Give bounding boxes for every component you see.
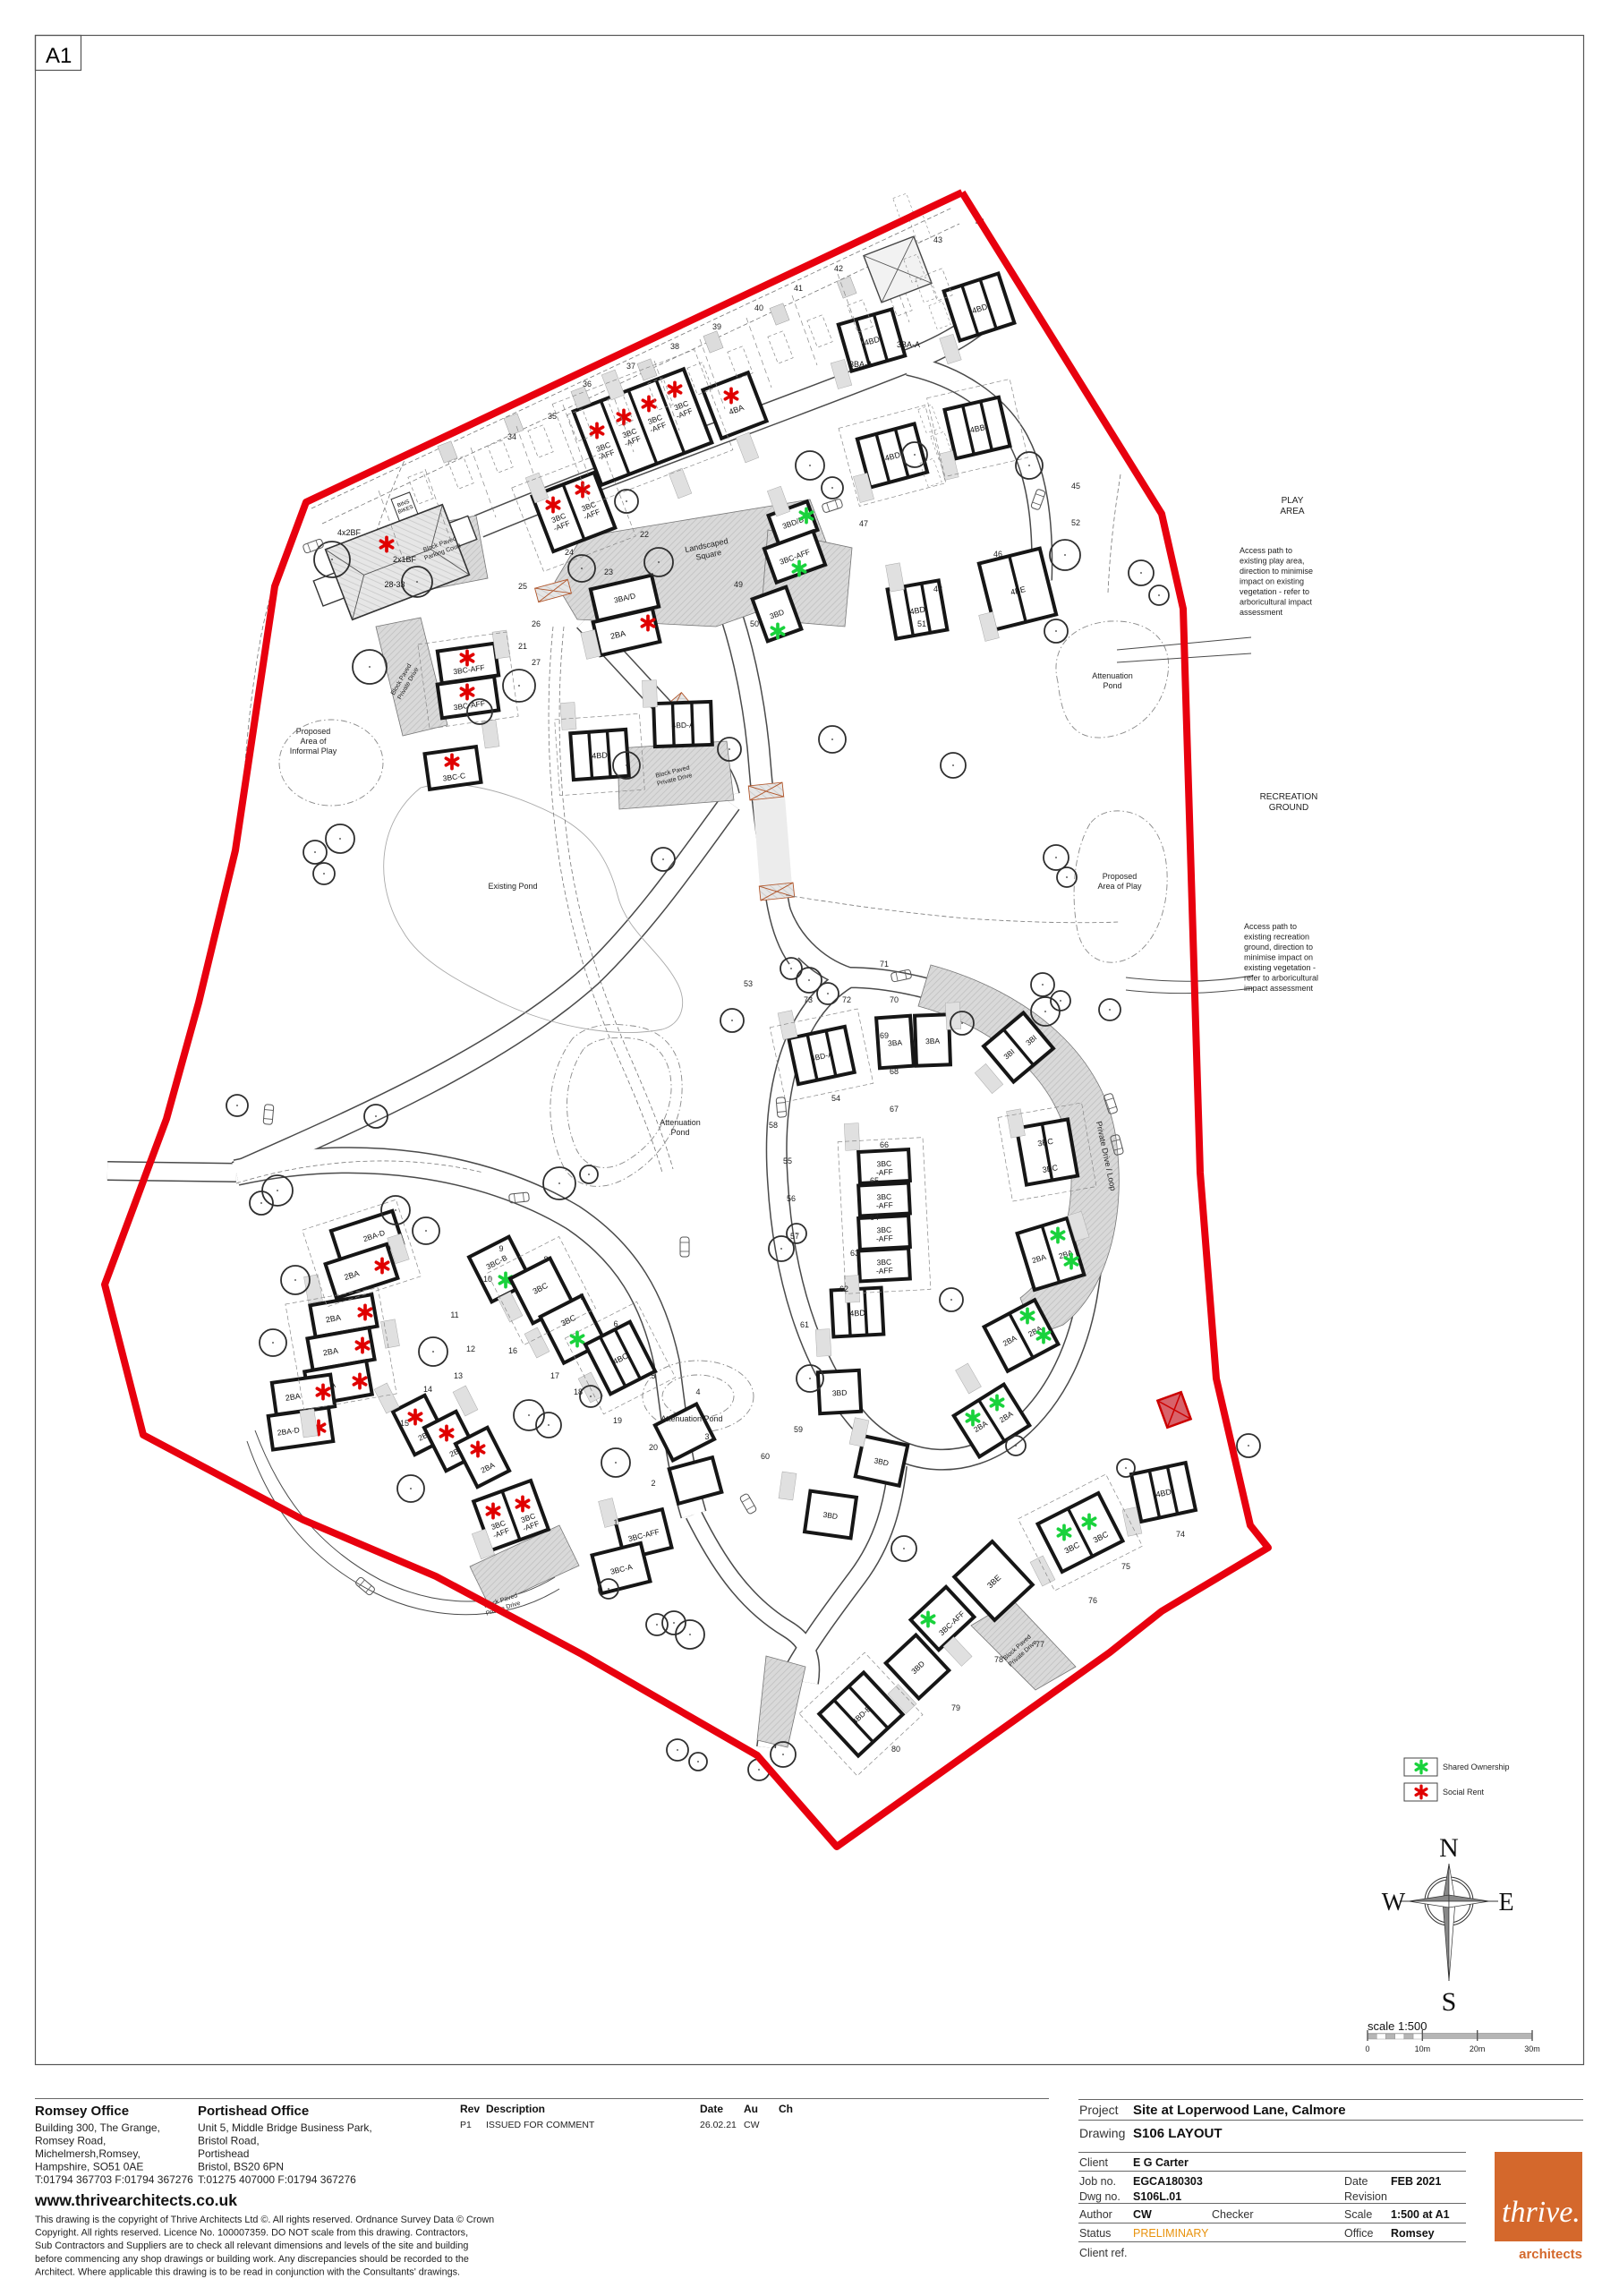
svg-text:18: 18 <box>574 1387 583 1396</box>
svg-text:3BA: 3BA <box>925 1037 941 1046</box>
svg-text:Attenuation Pond: Attenuation Pond <box>660 1414 722 1423</box>
svg-text:Author: Author <box>1079 2208 1112 2221</box>
svg-text:63: 63 <box>850 1249 859 1258</box>
svg-text:A1: A1 <box>46 44 72 68</box>
svg-text:22: 22 <box>640 530 649 539</box>
svg-text:2x1BF: 2x1BF <box>393 555 417 564</box>
svg-text:25: 25 <box>518 582 527 591</box>
svg-text:13: 13 <box>454 1371 463 1380</box>
svg-text:35: 35 <box>548 412 557 421</box>
svg-text:Unit 5, Middle Bridge Business: Unit 5, Middle Bridge Business Park, <box>198 2121 372 2134</box>
svg-text:assessment: assessment <box>1240 608 1283 617</box>
svg-text:4BD-A: 4BD-A <box>671 721 694 730</box>
svg-text:Access path to: Access path to <box>1240 546 1292 555</box>
svg-text:42: 42 <box>834 264 843 273</box>
svg-text:S106 LAYOUT: S106 LAYOUT <box>1133 2126 1223 2141</box>
svg-text:4x2BF: 4x2BF <box>337 528 362 537</box>
svg-text:72: 72 <box>842 995 851 1004</box>
svg-text:16: 16 <box>508 1346 517 1355</box>
svg-text:scale 1:500: scale 1:500 <box>1368 2019 1427 2033</box>
svg-text:architects: architects <box>1519 2247 1582 2262</box>
svg-text:thrive.: thrive. <box>1502 2196 1581 2229</box>
svg-text:Hampshire, SO51 0AE: Hampshire, SO51 0AE <box>35 2161 143 2173</box>
svg-text:54: 54 <box>831 1094 840 1103</box>
svg-text:79: 79 <box>951 1703 960 1712</box>
svg-text:Bristol, BS20 6PN: Bristol, BS20 6PN <box>198 2161 284 2173</box>
svg-text:P1: P1 <box>460 2120 472 2130</box>
svg-text:66: 66 <box>880 1140 889 1149</box>
svg-text:Client: Client <box>1079 2156 1108 2169</box>
svg-text:36: 36 <box>583 380 592 388</box>
svg-text:Client ref.: Client ref. <box>1079 2247 1128 2259</box>
svg-text:73: 73 <box>804 995 813 1004</box>
svg-text:67: 67 <box>890 1105 899 1114</box>
svg-text:8: 8 <box>543 1255 548 1264</box>
svg-text:Area of Play: Area of Play <box>1097 882 1142 891</box>
svg-text:S: S <box>1442 1987 1457 2017</box>
svg-text:77: 77 <box>1035 1640 1044 1649</box>
svg-text:Proposed: Proposed <box>296 727 331 736</box>
svg-text:refer to arboricultural: refer to arboricultural <box>1244 974 1318 983</box>
svg-text:34: 34 <box>507 432 516 441</box>
svg-text:27: 27 <box>532 658 541 667</box>
svg-text:Portishead: Portishead <box>198 2147 249 2160</box>
svg-text:59: 59 <box>794 1425 803 1434</box>
svg-text:Scale: Scale <box>1344 2208 1372 2221</box>
svg-text:Portishead Office: Portishead Office <box>198 2104 309 2119</box>
svg-text:arboricultural impact: arboricultural impact <box>1240 598 1313 607</box>
svg-text:4BD: 4BD <box>849 1309 866 1319</box>
svg-text:existing vegetation -: existing vegetation - <box>1244 963 1316 972</box>
svg-text:71: 71 <box>880 960 889 969</box>
svg-text:E G Carter: E G Carter <box>1133 2156 1189 2169</box>
svg-text:60: 60 <box>761 1452 770 1461</box>
svg-text:Proposed: Proposed <box>1103 872 1138 881</box>
svg-text:Status: Status <box>1079 2227 1111 2240</box>
svg-text:direction to minimise: direction to minimise <box>1240 567 1313 576</box>
svg-text:43: 43 <box>933 235 942 244</box>
svg-text:23: 23 <box>604 568 613 576</box>
svg-text:58: 58 <box>769 1121 778 1130</box>
svg-text:AREA: AREA <box>1280 507 1305 516</box>
svg-text:5: 5 <box>651 1371 655 1380</box>
svg-text:-AFF: -AFF <box>876 1233 893 1243</box>
svg-text:Pond: Pond <box>670 1128 689 1137</box>
svg-text:Romsey Office: Romsey Office <box>35 2104 129 2119</box>
svg-text:Project: Project <box>1079 2103 1119 2117</box>
svg-text:70: 70 <box>890 995 899 1004</box>
svg-text:Ch: Ch <box>779 2103 793 2115</box>
svg-text:52: 52 <box>1071 518 1080 527</box>
svg-text:Michelmersh,Romsey,: Michelmersh,Romsey, <box>35 2147 141 2160</box>
svg-text:48: 48 <box>933 585 942 593</box>
svg-text:E: E <box>1498 1889 1513 1916</box>
svg-text:existing recreation: existing recreation <box>1244 933 1309 942</box>
svg-text:51: 51 <box>917 619 926 628</box>
svg-text:26.02.21: 26.02.21 <box>700 2120 737 2130</box>
svg-text:Office: Office <box>1344 2227 1373 2240</box>
svg-text:65: 65 <box>870 1176 879 1185</box>
svg-text:Site at Loperwood Lane, Calmor: Site at Loperwood Lane, Calmore <box>1133 2103 1346 2118</box>
svg-text:9: 9 <box>498 1244 503 1253</box>
svg-text:minimise impact on: minimise impact on <box>1244 953 1313 962</box>
svg-text:3: 3 <box>704 1432 709 1441</box>
svg-text:Romsey Road,: Romsey Road, <box>35 2135 106 2147</box>
svg-text:68: 68 <box>890 1067 899 1076</box>
svg-text:0: 0 <box>1365 2044 1369 2053</box>
svg-text:Building 300, The Grange,: Building 300, The Grange, <box>35 2121 160 2134</box>
svg-text:Area of: Area of <box>300 737 327 746</box>
svg-text:T:01794 367703 F:01794 367276: T:01794 367703 F:01794 367276 <box>35 2173 193 2186</box>
svg-text:15: 15 <box>400 1419 409 1428</box>
svg-text:11: 11 <box>450 1310 458 1319</box>
svg-text:17: 17 <box>550 1371 559 1380</box>
svg-text:Drawing: Drawing <box>1079 2126 1125 2140</box>
svg-text:10m: 10m <box>1415 2044 1431 2053</box>
svg-text:40: 40 <box>754 303 763 312</box>
svg-text:39: 39 <box>712 322 721 331</box>
svg-text:41: 41 <box>794 284 803 293</box>
svg-text:Copyright. All rights reserved: Copyright. All rights reserved. Licence … <box>35 2228 468 2239</box>
svg-text:before commencing any shop dra: before commencing any shop drawings or b… <box>35 2254 469 2265</box>
svg-text:Attenuation: Attenuation <box>1092 671 1133 680</box>
svg-text:Shared Ownership: Shared Ownership <box>1443 1763 1510 1771</box>
svg-text:46: 46 <box>993 550 1002 559</box>
svg-text:74: 74 <box>1176 1530 1185 1539</box>
svg-text:vegetation - refer to: vegetation - refer to <box>1240 587 1309 596</box>
svg-text:RECREATION: RECREATION <box>1260 792 1318 802</box>
svg-text:75: 75 <box>1121 1562 1130 1571</box>
svg-text:20: 20 <box>649 1443 658 1452</box>
svg-text:impact assessment: impact assessment <box>1244 984 1314 993</box>
svg-text:S106L.01: S106L.01 <box>1133 2190 1181 2203</box>
svg-text:47: 47 <box>859 519 868 528</box>
svg-text:76: 76 <box>1088 1596 1097 1605</box>
svg-text:56: 56 <box>787 1194 796 1203</box>
svg-text:N: N <box>1439 1833 1459 1863</box>
svg-text:49: 49 <box>734 580 743 589</box>
svg-text:4: 4 <box>695 1387 700 1396</box>
svg-text:Description: Description <box>486 2103 545 2115</box>
svg-text:21: 21 <box>518 642 527 651</box>
svg-text:Dwg no.: Dwg no. <box>1079 2190 1121 2203</box>
svg-text:www.thrivearchitects.co.uk: www.thrivearchitects.co.uk <box>34 2191 237 2209</box>
svg-text:impact on existing: impact on existing <box>1240 577 1304 586</box>
svg-text:4BD: 4BD <box>592 750 609 760</box>
svg-text:Job no.: Job no. <box>1079 2175 1116 2188</box>
svg-text:CW: CW <box>744 2120 760 2130</box>
svg-text:57: 57 <box>790 1232 799 1241</box>
svg-text:38: 38 <box>670 342 679 351</box>
svg-text:Romsey: Romsey <box>1391 2227 1435 2240</box>
svg-text:FEB 2021: FEB 2021 <box>1391 2175 1441 2188</box>
svg-text:Pond: Pond <box>1103 681 1121 690</box>
svg-text:existing play area,: existing play area, <box>1240 557 1305 566</box>
svg-text:GROUND: GROUND <box>1269 803 1308 813</box>
svg-text:ISSUED FOR COMMENT: ISSUED FOR COMMENT <box>486 2120 595 2130</box>
svg-text:Architect. Where applicable th: Architect. Where applicable this drawing… <box>35 2266 460 2277</box>
svg-text:W: W <box>1382 1889 1406 1916</box>
svg-text:6: 6 <box>613 1319 618 1328</box>
svg-text:3BA: 3BA <box>888 1037 903 1047</box>
svg-text:-AFF: -AFF <box>876 1266 893 1276</box>
svg-text:Social Rent: Social Rent <box>1443 1788 1485 1797</box>
svg-text:Access path to: Access path to <box>1244 922 1297 931</box>
svg-text:61: 61 <box>800 1320 809 1329</box>
svg-text:EGCA180303: EGCA180303 <box>1133 2175 1203 2188</box>
svg-text:Existing Pond: Existing Pond <box>488 882 537 891</box>
svg-text:Checker: Checker <box>1212 2208 1254 2221</box>
svg-text:2: 2 <box>651 1479 655 1488</box>
svg-text:Informal Play: Informal Play <box>290 747 337 755</box>
svg-text:ground, direction to: ground, direction to <box>1244 943 1313 952</box>
svg-text:Date: Date <box>1344 2175 1368 2188</box>
svg-text:3BA-A: 3BA-A <box>897 340 920 349</box>
svg-text:7: 7 <box>579 1293 584 1302</box>
svg-text:37: 37 <box>626 362 635 371</box>
svg-text:Date: Date <box>700 2103 723 2115</box>
svg-text:45: 45 <box>1071 482 1080 491</box>
svg-text:30m: 30m <box>1524 2044 1540 2053</box>
svg-text:55: 55 <box>783 1157 792 1165</box>
svg-text:78: 78 <box>994 1655 1003 1664</box>
svg-text:14: 14 <box>423 1385 432 1394</box>
svg-text:Bristol Road,: Bristol Road, <box>198 2135 260 2147</box>
svg-text:T:01275 407000 F:01794 367276: T:01275 407000 F:01794 367276 <box>198 2173 356 2186</box>
svg-text:53: 53 <box>744 979 753 988</box>
svg-text:Rev: Rev <box>460 2103 480 2115</box>
svg-text:This drawing is the copyright: This drawing is the copyright of Thrive … <box>35 2215 494 2225</box>
svg-text:Revision: Revision <box>1344 2190 1387 2203</box>
svg-text:PRELIMINARY: PRELIMINARY <box>1133 2227 1209 2240</box>
svg-text:Au: Au <box>744 2103 758 2115</box>
svg-text:69: 69 <box>880 1031 889 1040</box>
svg-text:24: 24 <box>565 548 574 557</box>
svg-text:20m: 20m <box>1470 2044 1486 2053</box>
svg-text:10: 10 <box>483 1275 492 1284</box>
svg-text:3BA-A: 3BA-A <box>849 360 873 369</box>
svg-text:PLAY: PLAY <box>1282 496 1304 506</box>
svg-text:19: 19 <box>613 1416 622 1425</box>
svg-text:1:500 at A1: 1:500 at A1 <box>1391 2208 1450 2221</box>
svg-text:-AFF: -AFF <box>876 1200 893 1210</box>
svg-text:3BD: 3BD <box>832 1388 848 1398</box>
svg-text:80: 80 <box>891 1745 900 1754</box>
svg-text:26: 26 <box>532 619 541 628</box>
svg-text:Attenuation: Attenuation <box>660 1118 701 1127</box>
svg-text:50: 50 <box>750 619 759 628</box>
svg-text:Sub Contractors and Suppliers: Sub Contractors and Suppliers are to che… <box>35 2241 468 2251</box>
svg-text:1: 1 <box>613 1518 618 1527</box>
svg-text:64: 64 <box>870 1213 879 1222</box>
svg-text:CW: CW <box>1133 2208 1152 2221</box>
svg-text:62: 62 <box>839 1285 848 1293</box>
svg-text:12: 12 <box>466 1344 475 1353</box>
